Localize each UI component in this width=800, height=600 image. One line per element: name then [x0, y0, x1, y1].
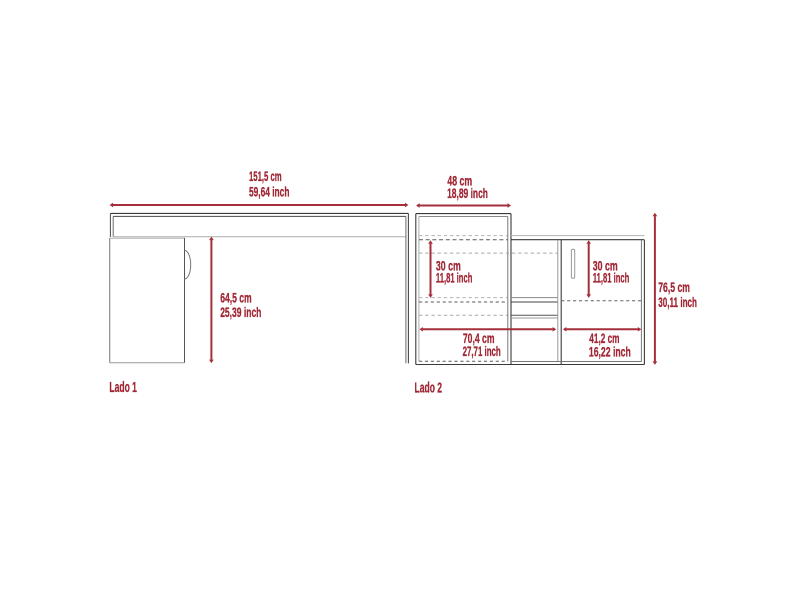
- svg-text:Lado 1: Lado 1: [109, 379, 137, 396]
- svg-text:30,11 inch: 30,11 inch: [658, 296, 697, 311]
- svg-text:64,5 cm: 64,5 cm: [220, 291, 251, 307]
- svg-text:18,89 inch: 18,89 inch: [447, 187, 488, 202]
- svg-text:59,64 inch: 59,64 inch: [249, 185, 289, 200]
- svg-text:27,71 inch: 27,71 inch: [463, 345, 501, 360]
- svg-text:Lado 2: Lado 2: [415, 379, 443, 396]
- svg-text:16,22 inch: 16,22 inch: [589, 344, 631, 360]
- svg-text:25,39 inch: 25,39 inch: [220, 306, 261, 320]
- svg-text:151,5 cm: 151,5 cm: [249, 170, 282, 185]
- svg-text:11,81 inch: 11,81 inch: [593, 271, 630, 286]
- svg-text:11,81 inch: 11,81 inch: [436, 271, 473, 286]
- svg-text:76,5 cm: 76,5 cm: [658, 280, 690, 296]
